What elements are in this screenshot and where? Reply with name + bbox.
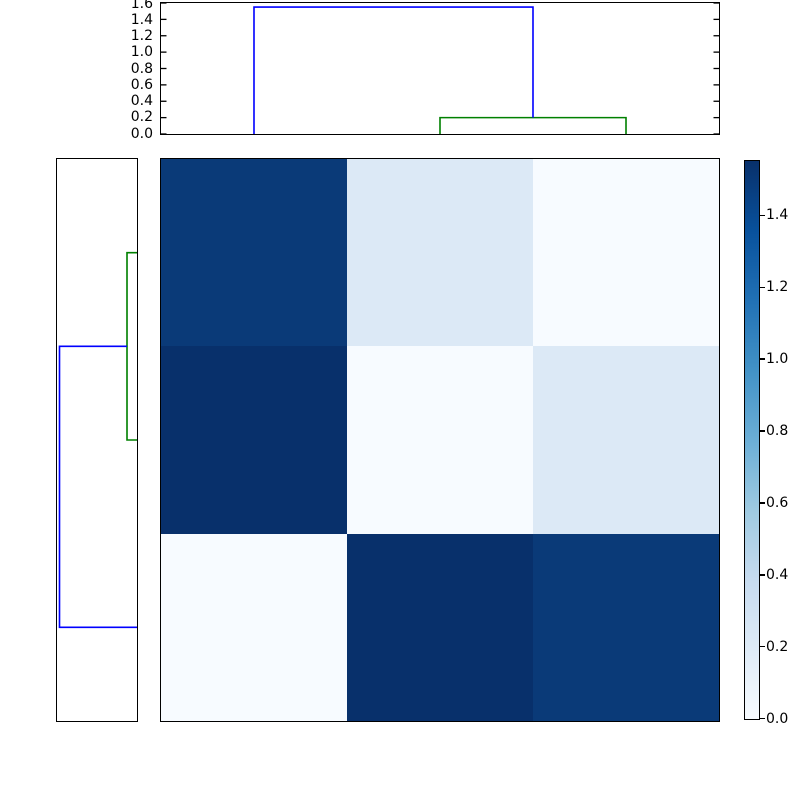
- colorbar-tick-label: 0.6: [766, 494, 788, 512]
- colorbar-tick-label: 1.2: [766, 278, 788, 296]
- colorbar-tick: [759, 287, 765, 289]
- colorbar-tick: [759, 502, 765, 504]
- colorbar-tick: [759, 718, 765, 720]
- colorbar-tick: [759, 646, 765, 648]
- top-axis-tick-label: 0.0: [111, 125, 153, 143]
- colorbar-tick: [759, 430, 765, 432]
- dendrogram-link-green: [127, 253, 137, 440]
- dendrogram-link-blue: [254, 7, 533, 134]
- colorbar-tick: [759, 574, 765, 576]
- dendrogram-link-blue: [60, 346, 137, 627]
- colorbar: [744, 160, 760, 720]
- colorbar-tick: [759, 358, 765, 360]
- colorbar-tick-label: 1.4: [766, 206, 788, 224]
- top-axis-tick-label: 0.8: [111, 60, 153, 78]
- heatmap-cell-r3c2: [347, 534, 533, 721]
- colorbar-tick-label: 1.0: [766, 350, 788, 368]
- top-dendrogram-panel: [160, 2, 720, 135]
- heatmap-cell-r3c3: [533, 534, 719, 721]
- heatmap-cell-r2c1: [161, 346, 347, 533]
- left-dendrogram: [57, 159, 137, 721]
- top-axis-tick-label: 1.2: [111, 27, 153, 45]
- colorbar-tick-label: 0.8: [766, 422, 788, 440]
- colorbar-tick-label: 0.4: [766, 566, 788, 584]
- heatmap-cell-r1c3: [533, 159, 719, 346]
- top-dendrogram: [161, 3, 719, 134]
- heatmap-cell-r1c2: [347, 159, 533, 346]
- heatmap-cell-r1c1: [161, 159, 347, 346]
- colorbar-tick-label: 0.2: [766, 638, 788, 656]
- heatmap-panel: [160, 158, 720, 722]
- top-axis-tick-label: 0.4: [111, 92, 153, 110]
- colorbar-tick: [759, 215, 765, 217]
- heatmap-cell-r2c2: [347, 346, 533, 533]
- dendrogram-link-green: [440, 118, 626, 134]
- clustermap-figure: 1.61.41.21.00.80.60.40.20.0 1.41.21.00.8…: [0, 0, 800, 800]
- heatmap-cell-r3c1: [161, 534, 347, 721]
- left-dendrogram-panel: [56, 158, 138, 722]
- heatmap-cell-r2c3: [533, 346, 719, 533]
- colorbar-tick-label: 0.0: [766, 710, 788, 728]
